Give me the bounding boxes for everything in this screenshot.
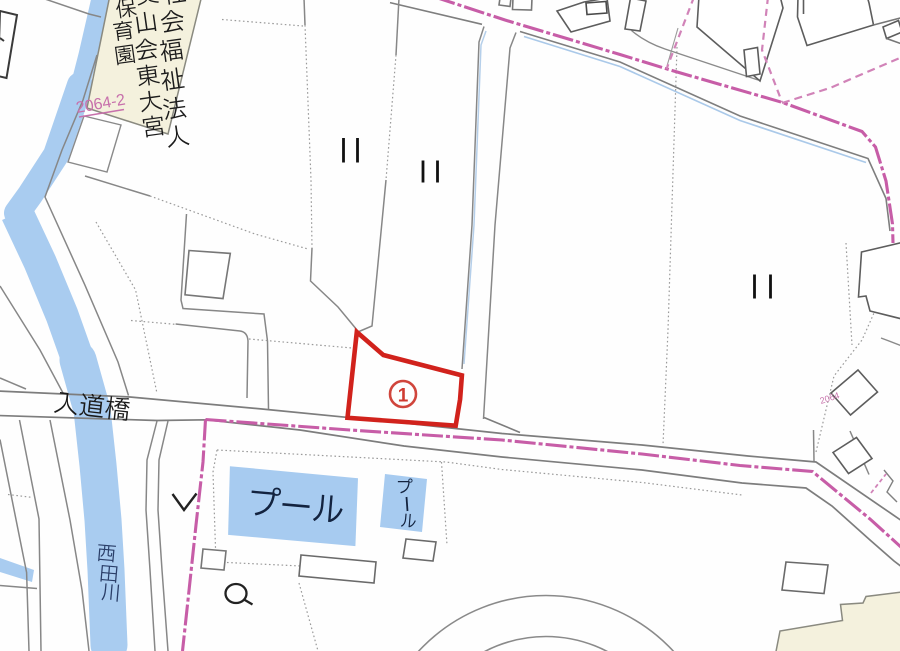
svg-text:1: 1: [398, 386, 409, 407]
